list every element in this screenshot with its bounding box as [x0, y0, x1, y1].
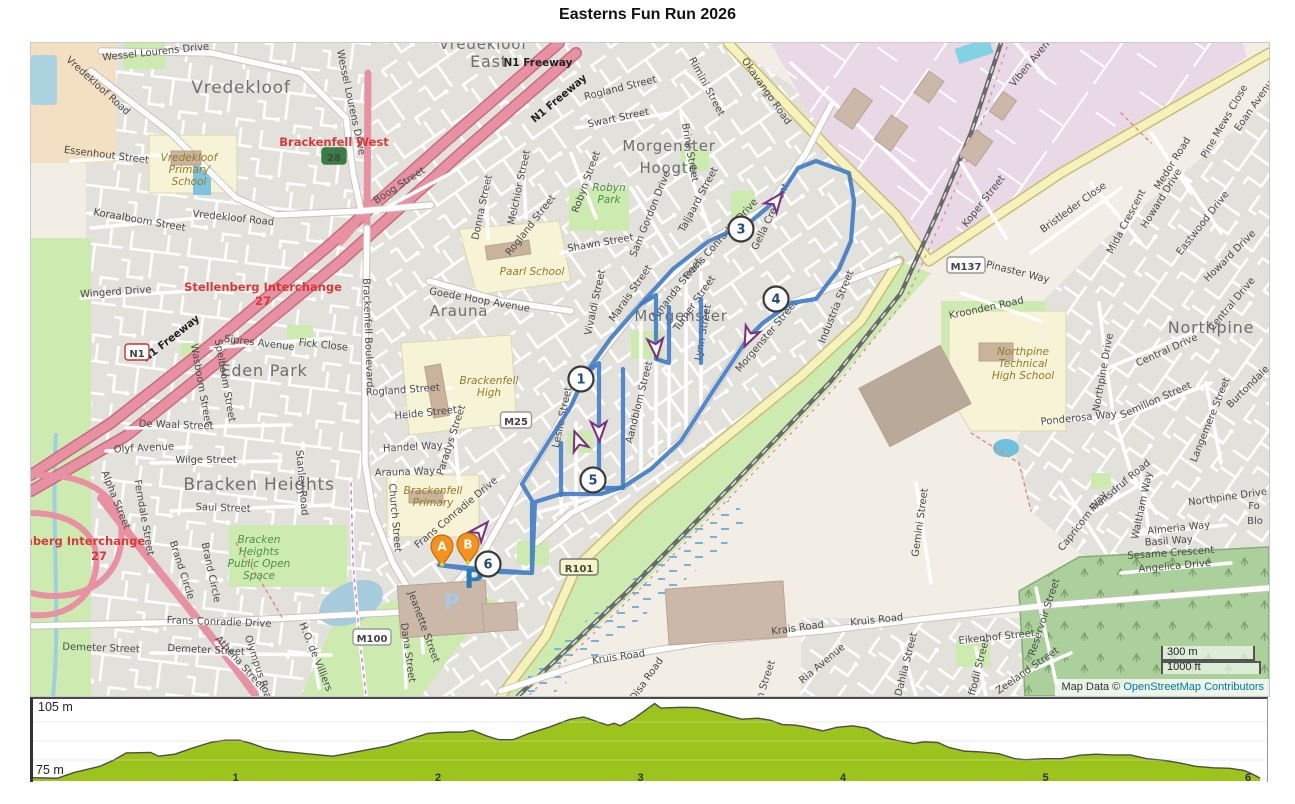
road-shield-28: 28: [322, 148, 346, 164]
waypoint-marker-5[interactable]: 5: [581, 468, 606, 493]
street-label: Fo: [1248, 501, 1260, 512]
junction-label: 27: [255, 294, 271, 308]
elevation-xtick: 4: [840, 772, 847, 781]
svg-text:28: 28: [327, 153, 341, 164]
waypoint-marker-4[interactable]: 4: [764, 287, 789, 312]
svg-text:B: B: [463, 538, 472, 552]
svg-text:6: 6: [483, 558, 492, 573]
street-label: Wilge Street: [175, 455, 236, 466]
page-title: Easterns Fun Run 2026: [0, 6, 1295, 24]
svg-text:M25: M25: [504, 417, 528, 428]
junction-label: Stellenberg Interchange: [184, 280, 342, 294]
street-label: Blo: [1247, 516, 1263, 527]
elevation-xtick: 5: [1042, 772, 1048, 781]
waypoint-marker-1[interactable]: 1: [569, 367, 594, 392]
road-shield-M25: M25: [501, 412, 532, 428]
waypoint-marker-6[interactable]: 6: [476, 552, 501, 577]
svg-text:A: A: [437, 540, 447, 554]
road-shield-M137: M137: [947, 257, 985, 273]
scale-imperial: 1000 ft: [1161, 661, 1261, 674]
elevation-xtick: 3: [637, 772, 643, 781]
junction-label: 27: [91, 549, 107, 563]
osm-contributors-link[interactable]: OpenStreetMap Contributors: [1123, 681, 1264, 693]
elevation-min-label: 75 m: [36, 763, 64, 777]
elevation-max-label: 105 m: [38, 700, 73, 714]
elevation-area: [33, 704, 1260, 781]
map-svg[interactable]: VredekloofVredekloofEastMorgensterHoogte…: [31, 43, 1269, 696]
map-attribution: Map Data © OpenStreetMap Contributors: [1055, 679, 1269, 696]
svg-text:5: 5: [588, 474, 597, 489]
svg-text:4: 4: [771, 293, 780, 308]
place-label: East: [470, 52, 508, 71]
map-canvas[interactable]: VredekloofVredekloofEastMorgensterHoogte…: [30, 42, 1270, 697]
street-label: Arauna Way: [375, 466, 436, 479]
elevation-xtick: 6: [1245, 772, 1251, 781]
street-label: Saul Street: [195, 502, 251, 515]
waypoint-marker-3[interactable]: 3: [729, 217, 754, 242]
scale-metric: 300 m: [1161, 646, 1255, 661]
svg-text:3: 3: [736, 223, 745, 238]
svg-text:1: 1: [576, 373, 585, 388]
elevation-profile: 123456 105 m 75 m: [30, 697, 1268, 782]
svg-text:M100: M100: [357, 634, 388, 645]
svg-text:R101: R101: [565, 564, 594, 575]
place-label: Vredekloof: [191, 78, 291, 98]
poi-label: Paarl School: [500, 266, 565, 278]
scale-control: 300 m 1000 ft: [1161, 646, 1261, 674]
road-shield-M100: M100: [353, 629, 391, 645]
road-shield-N1: N1: [125, 344, 149, 360]
place-label: Eden Park: [220, 361, 307, 380]
elevation-xtick: 1: [232, 772, 238, 781]
junction-label: Brackenfell West: [279, 135, 389, 149]
svg-text:M137: M137: [951, 262, 982, 273]
parking-icon[interactable]: P: [444, 590, 459, 614]
svg-text:N1: N1: [129, 349, 144, 360]
page: Easterns Fun Run 2026: [0, 0, 1295, 804]
freeway-label: N1 Freeway: [504, 57, 573, 69]
poi-label: NorthpineTechnicalHigh School: [992, 346, 1054, 382]
elevation-svg: 123456: [33, 699, 1267, 781]
place-label: Morgenster: [622, 137, 715, 155]
place-label: Bracken Heights: [183, 475, 334, 495]
junction-label: enberg Interchange: [31, 534, 145, 548]
attribution-prefix: Map Data ©: [1061, 681, 1123, 693]
elevation-xtick: 2: [435, 772, 441, 781]
road-shield-R101: R101: [560, 559, 598, 575]
